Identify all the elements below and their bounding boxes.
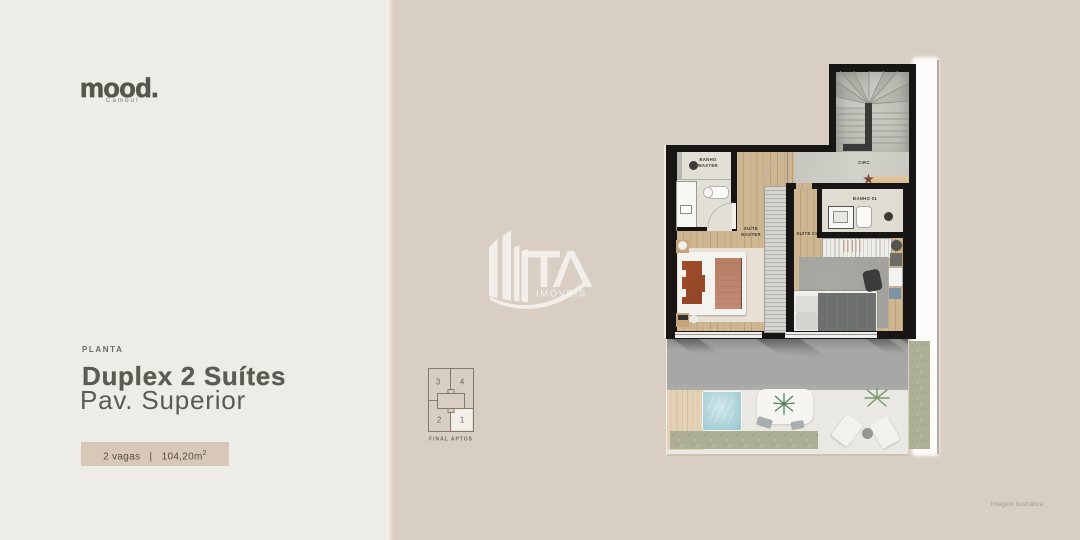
svg-text:1: 1 bbox=[460, 416, 464, 425]
svg-text:2: 2 bbox=[437, 416, 441, 425]
svg-text:4: 4 bbox=[460, 378, 465, 387]
svg-text:3: 3 bbox=[436, 378, 440, 387]
svg-text:IMÓVEIS: IMÓVEIS bbox=[536, 289, 587, 300]
svg-text:FINAL APTOS: FINAL APTOS bbox=[429, 437, 473, 443]
